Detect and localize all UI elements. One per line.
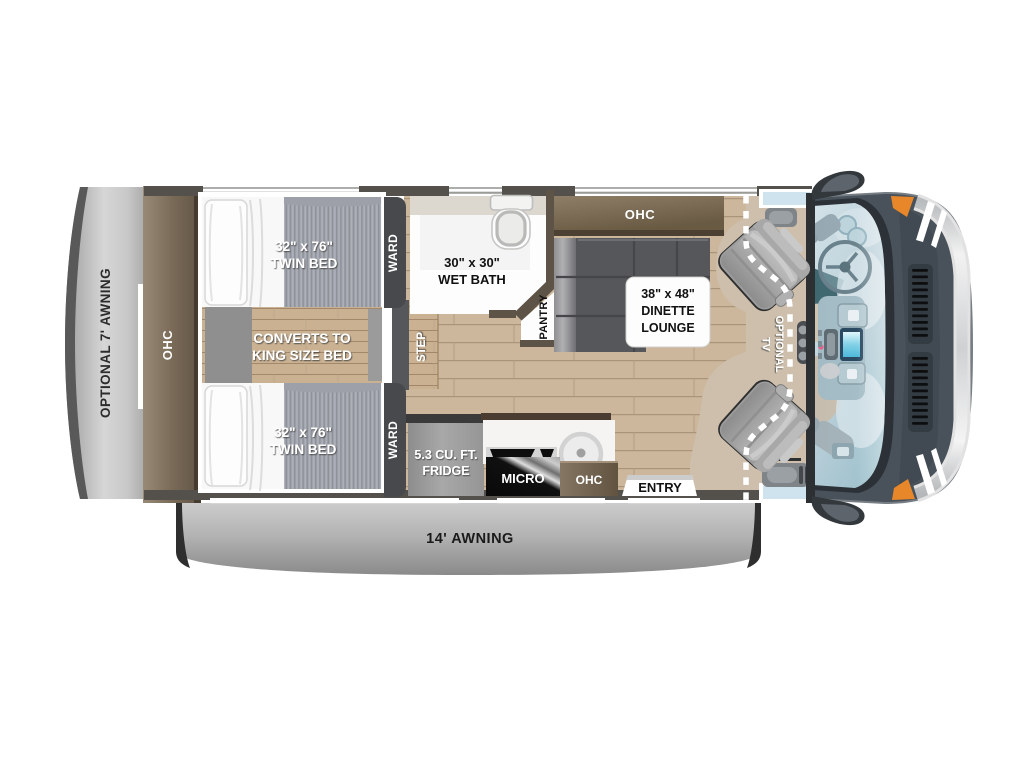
svg-text:14' AWNING: 14' AWNING	[426, 531, 514, 547]
svg-text:32" x 76": 32" x 76"	[275, 239, 333, 254]
svg-text:CONVERTS TO: CONVERTS TO	[253, 331, 350, 346]
svg-text:TWIN BED: TWIN BED	[270, 442, 337, 457]
svg-text:LOUNGE: LOUNGE	[641, 321, 694, 335]
svg-text:5.3 CU. FT.: 5.3 CU. FT.	[414, 448, 477, 462]
svg-text:32" x 76": 32" x 76"	[274, 425, 332, 440]
svg-text:WET BATH: WET BATH	[438, 272, 506, 287]
svg-text:WARD: WARD	[386, 421, 400, 459]
svg-text:STEP: STEP	[416, 332, 428, 362]
svg-text:MICRO: MICRO	[501, 471, 544, 486]
svg-text:WARD: WARD	[386, 234, 400, 272]
svg-text:PANTRY: PANTRY	[538, 294, 550, 340]
svg-text:OHC: OHC	[625, 207, 656, 222]
svg-text:30" x 30": 30" x 30"	[444, 255, 500, 270]
svg-text:KING SIZE BED: KING SIZE BED	[252, 348, 352, 363]
svg-text:FRIDGE: FRIDGE	[422, 464, 469, 478]
svg-text:ENTRY: ENTRY	[638, 480, 682, 495]
svg-text:TWIN BED: TWIN BED	[271, 256, 338, 271]
svg-text:38" x 48": 38" x 48"	[641, 287, 695, 301]
svg-text:DINETTE: DINETTE	[641, 304, 694, 318]
svg-text:OPTIONAL 7' AWNING: OPTIONAL 7' AWNING	[98, 268, 113, 418]
svg-text:OHC: OHC	[576, 473, 603, 487]
svg-text:OHC: OHC	[160, 330, 175, 361]
